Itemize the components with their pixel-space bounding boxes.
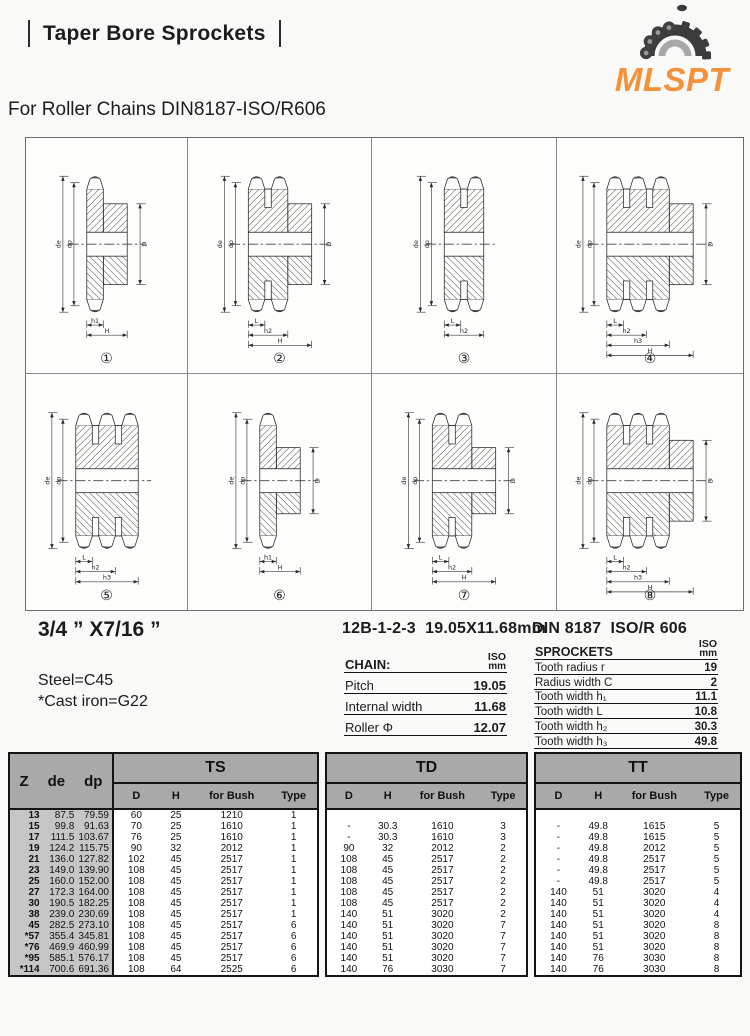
cell-z: 38: [10, 909, 41, 920]
table-cell: 2517: [193, 920, 270, 931]
sprockets-row: Tooth radius r19: [534, 660, 718, 675]
table-cell: 2517: [405, 865, 481, 876]
table-cell: 45: [159, 898, 194, 909]
cell-z: 13: [10, 810, 41, 821]
table-row: 1084525172: [327, 898, 526, 909]
sub-header-row: DHfor BushType: [327, 784, 526, 810]
table-row: 45282.5273.10: [10, 920, 112, 931]
page-title: Taper Bore Sprockets: [43, 22, 266, 46]
table-row: -49.820125: [536, 843, 740, 854]
table-cell: 108: [114, 887, 159, 898]
sprocket-spec-table: SPROCKETSISOmmTooth radius r19Radius wid…: [534, 640, 718, 749]
table-cell: 45: [159, 920, 194, 931]
group-header: TD: [327, 754, 526, 784]
table-cell: 1: [270, 843, 317, 854]
svg-text:D: D: [509, 478, 517, 483]
table-cell: 49.8: [581, 832, 616, 843]
diagram-cell: dedpDLh2h3H④: [557, 138, 743, 374]
spec-value: 49.8: [695, 736, 717, 748]
table-cell: 51: [581, 920, 616, 931]
table-cell: 49.8: [581, 865, 616, 876]
column-header: Z: [19, 773, 28, 790]
sprocket-diagram: dedpLh2: [385, 143, 543, 373]
table-row: 903220121: [114, 843, 317, 854]
svg-text:de: de: [412, 240, 420, 248]
cell-de: 172.3: [41, 887, 76, 898]
svg-text:H: H: [462, 573, 467, 581]
svg-text:h2: h2: [91, 563, 99, 571]
table-cell: 32: [159, 843, 194, 854]
cell-z: 15: [10, 821, 41, 832]
table-cell: 6: [270, 920, 317, 931]
cell-z: 30: [10, 898, 41, 909]
table-row: 1084525176: [114, 942, 317, 953]
svg-text:dp: dp: [423, 240, 431, 248]
table-cell: 7: [480, 931, 526, 942]
table-cell: 7: [480, 964, 526, 975]
table-cell: 60: [114, 810, 159, 821]
table-cell: 45: [159, 909, 194, 920]
table-cell: 49.8: [581, 843, 616, 854]
cell-dp: 576.17: [75, 953, 112, 964]
table-cell: 3: [480, 821, 526, 832]
svg-text:L: L: [254, 317, 258, 325]
table-cell: 2: [480, 865, 526, 876]
spec-label: Radius width C: [535, 677, 612, 689]
table-cell: 5: [693, 865, 740, 876]
table-cell: 45: [371, 865, 405, 876]
svg-text:D: D: [706, 478, 714, 483]
table-cell: 102: [114, 854, 159, 865]
table-cell: 140: [536, 887, 581, 898]
chain-row: Internal width11.68: [344, 694, 507, 715]
sprockets-row: Tooth width h₃49.8: [534, 734, 718, 749]
svg-text:dp: dp: [586, 240, 594, 248]
table-row: -30.316103: [327, 821, 526, 832]
chain-spec-title: 12B-1-2-3 19.05X11.68mm: [342, 620, 546, 638]
spec-label: Tooth width h₂: [535, 721, 607, 733]
diagram-cell: dedpLh2h3⑤: [26, 374, 188, 610]
table-row: *95585.1576.17: [10, 953, 112, 964]
table-cell: 51: [581, 931, 616, 942]
table-cell: 108: [327, 854, 371, 865]
table-cell: 8: [693, 942, 740, 953]
table-cell: 108: [114, 931, 159, 942]
sprocket-diagram: dedpLh2h3: [28, 379, 186, 610]
table-cell: 4: [693, 898, 740, 909]
table-cell: -: [536, 876, 581, 887]
table-cell: 64: [159, 964, 194, 975]
table-cell: 45: [159, 887, 194, 898]
table-cell: 140: [536, 931, 581, 942]
spec-value: 19: [704, 662, 717, 674]
diagram-number: ⑦: [372, 587, 556, 604]
table-row: *114700.6691.36: [10, 964, 112, 975]
table-cell: 140: [536, 942, 581, 953]
diagram-number: ③: [372, 350, 556, 367]
table-cell: 2517: [193, 876, 270, 887]
table-cell: 5: [693, 843, 740, 854]
z-de-dp-header: Zdedp: [10, 754, 112, 810]
table-cell: 108: [114, 876, 159, 887]
table-cell: 3020: [616, 898, 694, 909]
table-cell: 140: [536, 909, 581, 920]
table-cell: 1610: [405, 821, 481, 832]
table-cell: 76: [371, 964, 405, 975]
table-cell: 2517: [193, 854, 270, 865]
cell-de: 99.8: [41, 821, 76, 832]
table-cell: 140: [536, 953, 581, 964]
table-cell: 1: [270, 865, 317, 876]
svg-text:h2: h2: [622, 563, 630, 571]
table-cell: 6: [270, 964, 317, 975]
sub-header-row: DHfor BushType: [536, 784, 740, 810]
table-cell: 2: [480, 854, 526, 865]
table-row: 1405130207: [327, 920, 526, 931]
table-cell: 1610: [193, 832, 270, 843]
brand-logo: MLSPT: [597, 4, 747, 106]
table-cell: 8: [693, 920, 740, 931]
spec-label: Roller Φ: [345, 720, 393, 735]
table-cell: 3020: [405, 953, 481, 964]
table-cell: 2: [480, 898, 526, 909]
table-cell: 3: [480, 832, 526, 843]
table-row: 1084525176: [114, 920, 317, 931]
table-cell: 49.8: [581, 854, 616, 865]
table-row: 30190.5182.25: [10, 898, 112, 909]
table-cell: 45: [159, 931, 194, 942]
cell-de: 700.6: [41, 964, 76, 975]
svg-text:L: L: [451, 317, 455, 325]
sprockets-row: Tooth width h₁11.1: [534, 690, 718, 705]
column-header: for Bush: [616, 790, 694, 802]
table-row: 1084525171: [114, 865, 317, 876]
sprocket-diagram: dedpDh1H: [201, 379, 359, 610]
table-cell: -: [536, 865, 581, 876]
table-row: 762516101: [114, 832, 317, 843]
table-cell: 51: [371, 909, 405, 920]
sprocket-diagram: dedpDLh2h3H: [571, 143, 729, 373]
table-row: -49.825175: [536, 876, 740, 887]
table-cell: 1: [270, 821, 317, 832]
table-cell: -: [536, 843, 581, 854]
svg-text:dp: dp: [586, 477, 594, 485]
sprockets-row: Tooth width L10.8: [534, 704, 718, 719]
diagram-cell: dedpDLh2H②: [188, 138, 372, 374]
spec-value: 11.68: [474, 699, 506, 714]
table-row: 1024525171: [114, 854, 317, 865]
table-cell: 140: [536, 898, 581, 909]
title-left-bar: [28, 20, 30, 47]
table-cell: 45: [159, 865, 194, 876]
table-row: 1086425256: [114, 964, 317, 975]
column-header: for Bush: [405, 790, 481, 802]
table-row: 602512101: [114, 810, 317, 821]
table-cell: 51: [581, 887, 616, 898]
table-row: 1084525171: [114, 887, 317, 898]
cell-de: 239.0: [41, 909, 76, 920]
table-row: [536, 810, 740, 821]
table-row: 1405130207: [327, 931, 526, 942]
sprocket-diagram: dedpDLh2H: [385, 379, 543, 610]
chain-row: Pitch19.05: [344, 673, 507, 694]
table-cell: 70: [114, 821, 159, 832]
table-cell: 140: [536, 920, 581, 931]
svg-text:de: de: [43, 477, 51, 485]
diagram-number: ④: [557, 350, 743, 367]
spec-label: Tooth radius r: [535, 662, 605, 674]
table-cell: 45: [159, 854, 194, 865]
table-row: *57355.4345.81: [10, 931, 112, 942]
table-cell: 2: [480, 876, 526, 887]
svg-text:h3: h3: [634, 573, 642, 581]
cell-dp: 115.75: [75, 843, 112, 854]
column-header: Type: [693, 790, 740, 802]
svg-text:h2: h2: [448, 563, 456, 571]
group-header: TS: [114, 754, 317, 784]
cell-z: 25: [10, 876, 41, 887]
column-header: H: [581, 790, 616, 802]
svg-text:D: D: [140, 242, 148, 247]
table-cell: 25: [159, 821, 194, 832]
column-header: D: [327, 790, 371, 802]
table-cell: 4: [693, 909, 740, 920]
table-cell: 3020: [616, 920, 694, 931]
table-cell: 108: [327, 865, 371, 876]
table-cell: 1210: [193, 810, 270, 821]
chain-header: CHAIN:: [345, 657, 391, 672]
table-cell: 3020: [405, 909, 481, 920]
spec-label: Pitch: [345, 678, 374, 693]
svg-text:dp: dp: [238, 477, 246, 485]
table-cell: 51: [371, 931, 405, 942]
svg-text:H: H: [277, 563, 282, 571]
title-right-bar: [279, 20, 281, 47]
spec-value: 19.05: [473, 678, 506, 693]
unit-label: ISOmm: [699, 639, 717, 660]
table-cell: 3020: [616, 931, 694, 942]
column-header: D: [114, 790, 159, 802]
svg-text:dp: dp: [54, 477, 62, 485]
table-row: 1084525172: [327, 854, 526, 865]
table-cell: 5: [693, 876, 740, 887]
table-cell: 140: [536, 964, 581, 975]
table-cell: 2012: [405, 843, 481, 854]
table-row: -49.825175: [536, 865, 740, 876]
table-cell: 49.8: [581, 821, 616, 832]
table-cell: 2517: [616, 854, 694, 865]
cell-dp: 691.36: [75, 964, 112, 975]
sprocket-diagram: dedpDLh2h3H: [571, 379, 729, 610]
diagram-cell: dedpDLh2h3H⑧: [557, 374, 743, 610]
table-cell: 5: [693, 854, 740, 865]
table-cell: 2517: [405, 898, 481, 909]
spec-value: 11.1: [695, 691, 717, 703]
table-cell: 1: [270, 909, 317, 920]
diagram-cell: dedpLh2③: [372, 138, 557, 374]
table-cell: 51: [581, 942, 616, 953]
table-cell: 2525: [193, 964, 270, 975]
cell-dp: 139.90: [75, 865, 112, 876]
table-cell: 140: [327, 909, 371, 920]
sprockets-row: Tooth width h₂30.3: [534, 719, 718, 734]
table-cell: 108: [327, 887, 371, 898]
table-cell: 76: [581, 964, 616, 975]
table-cell: 108: [327, 876, 371, 887]
table-cell: 25: [159, 832, 194, 843]
group-TD: TDDHfor BushType-30.316103-30.3161039032…: [325, 752, 528, 977]
cell-dp: 91.63: [75, 821, 112, 832]
column-header: for Bush: [193, 790, 270, 802]
table-cell: 76: [581, 953, 616, 964]
table-row: 19124.2115.75: [10, 843, 112, 854]
table-cell: 108: [114, 865, 159, 876]
table-cell: 90: [114, 843, 159, 854]
sub-header-row: DHfor BushType: [114, 784, 317, 810]
table-cell: 140: [327, 931, 371, 942]
cell-z: 23: [10, 865, 41, 876]
table-cell: 2: [480, 887, 526, 898]
table-cell: 6: [270, 931, 317, 942]
cell-dp: 164.00: [75, 887, 112, 898]
column-header: Type: [480, 790, 526, 802]
table-cell: 2517: [193, 898, 270, 909]
table-cell: 5: [693, 832, 740, 843]
diagram-grid: dedpDh1H①dedpDLh2H②dedpLh2③dedpDLh2h3H④d…: [25, 137, 744, 611]
table-row: 1405130207: [327, 942, 526, 953]
brand-name: MLSPT: [597, 61, 747, 99]
table-cell: 1615: [616, 821, 694, 832]
table-cell: 3030: [405, 964, 481, 975]
svg-text:L: L: [613, 317, 617, 325]
cell-z: 45: [10, 920, 41, 931]
table-cell: 30.3: [371, 821, 405, 832]
table-row: *76469.9460.99: [10, 942, 112, 953]
table-row: 17111.5103.67: [10, 832, 112, 843]
chain-header-row: CHAIN:ISOmm: [344, 646, 507, 673]
cell-dp: 152.00: [75, 876, 112, 887]
svg-text:dp: dp: [227, 240, 235, 248]
cell-dp: 230.69: [75, 909, 112, 920]
cell-de: 469.9: [41, 942, 76, 953]
table-cell: 6: [270, 942, 317, 953]
material-steel: Steel=C45: [38, 670, 148, 691]
table-cell: -: [327, 832, 371, 843]
table-row: 1084525172: [327, 876, 526, 887]
cell-dp: 79.59: [75, 810, 112, 821]
table-cell: 45: [159, 942, 194, 953]
diagram-number: ①: [26, 350, 187, 367]
cell-de: 87.5: [41, 810, 76, 821]
svg-text:h2: h2: [263, 327, 271, 335]
table-cell: 45: [371, 854, 405, 865]
column-header: Type: [270, 790, 317, 802]
table-cell: 108: [114, 964, 159, 975]
table-row: 38239.0230.69: [10, 909, 112, 920]
table-cell: -: [536, 821, 581, 832]
table-cell: 49.8: [581, 876, 616, 887]
table-cell: 1: [270, 887, 317, 898]
table-cell: 2517: [193, 942, 270, 953]
diagram-number: ⑥: [188, 587, 371, 604]
table-cell: 2517: [616, 876, 694, 887]
svg-text:h3: h3: [102, 573, 110, 581]
table-row: 1084525172: [327, 865, 526, 876]
table-cell: 1: [270, 898, 317, 909]
table-cell: 1610: [193, 821, 270, 832]
cell-z: *95: [10, 953, 41, 964]
spec-label: Tooth width h₃: [535, 736, 607, 748]
table-cell: 108: [114, 898, 159, 909]
table-cell: -: [327, 821, 371, 832]
table-cell: 3030: [616, 964, 694, 975]
table-cell: 3020: [405, 931, 481, 942]
table-cell: -: [536, 854, 581, 865]
table-row: 23149.0139.90: [10, 865, 112, 876]
table-row: 1405130204: [536, 898, 740, 909]
sprocket-diagram: dedpDLh2H: [201, 143, 359, 373]
table-cell: 3020: [405, 920, 481, 931]
table-cell: 1610: [405, 832, 481, 843]
material-cast-iron: *Cast iron=G22: [38, 691, 148, 712]
cell-de: 149.0: [41, 865, 76, 876]
svg-text:dp: dp: [65, 240, 73, 248]
diagram-cell: dedpDLh2H⑦: [372, 374, 557, 610]
group-TT: TTDHfor BushType-49.816155-49.816155-49.…: [534, 752, 742, 977]
diagram-number: ⑤: [26, 587, 187, 604]
page-title-block: Taper Bore Sprockets: [28, 20, 281, 47]
cell-z: *57: [10, 931, 41, 942]
cell-z: 17: [10, 832, 41, 843]
table-cell: 3020: [616, 942, 694, 953]
table-row: 1407630307: [327, 964, 526, 975]
table-cell: 3030: [616, 953, 694, 964]
group-header: TT: [536, 754, 740, 784]
table-cell: 51: [371, 953, 405, 964]
svg-text:D: D: [706, 242, 714, 247]
table-cell: 108: [114, 920, 159, 931]
table-row: 1407630308: [536, 953, 740, 964]
table-cell: 2517: [405, 887, 481, 898]
cell-z: 21: [10, 854, 41, 865]
spec-value: 30.3: [695, 721, 717, 733]
table-cell: 5: [693, 821, 740, 832]
table-cell: 8: [693, 931, 740, 942]
table-cell: 140: [327, 942, 371, 953]
catalog-page: Taper Bore Sprockets MLSPT For Roller Ch…: [0, 0, 750, 1036]
table-cell: 8: [693, 964, 740, 975]
cell-de: 160.0: [41, 876, 76, 887]
table-cell: 140: [327, 920, 371, 931]
group-TS: TSDHfor BushType602512101702516101762516…: [112, 752, 319, 977]
svg-text:dp: dp: [411, 477, 419, 485]
cell-de: 124.2: [41, 843, 76, 854]
cell-dp: 127.82: [75, 854, 112, 865]
table-row: 1084525172: [327, 887, 526, 898]
cell-dp: 460.99: [75, 942, 112, 953]
table-row: 1405130204: [536, 909, 740, 920]
svg-text:h1: h1: [90, 317, 98, 325]
table-cell: 2517: [193, 887, 270, 898]
table-cell: 6: [270, 953, 317, 964]
table-row: 27172.3164.00: [10, 887, 112, 898]
table-cell: 51: [371, 920, 405, 931]
svg-text:h3: h3: [634, 337, 642, 345]
table-row: 702516101: [114, 821, 317, 832]
table-cell: 90: [327, 843, 371, 854]
table-row: 1084525176: [114, 931, 317, 942]
table-cell: -: [536, 832, 581, 843]
